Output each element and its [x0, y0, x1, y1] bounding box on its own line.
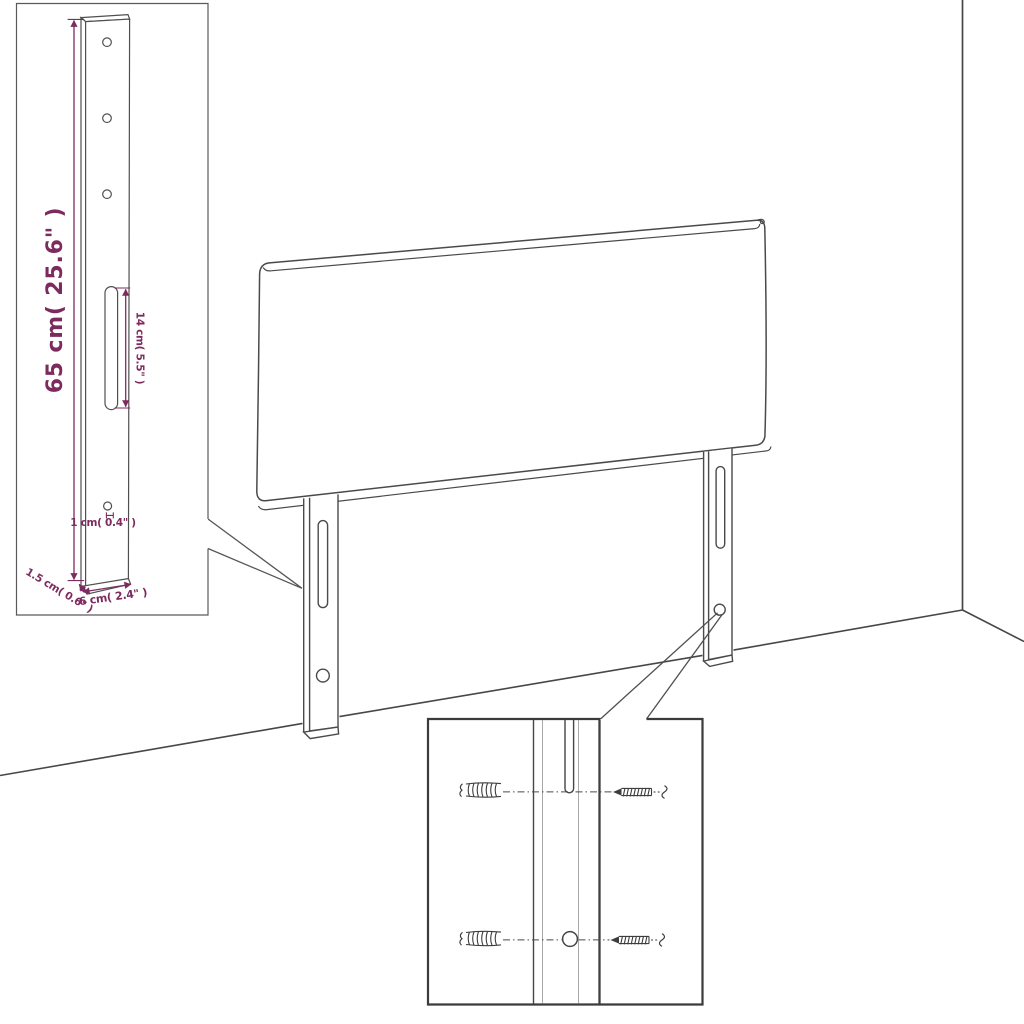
- panel-outline: [257, 220, 766, 500]
- headboard-left-leg: [304, 494, 339, 738]
- dimension-label-leg-height: 65 cm( 25.6" ): [45, 207, 67, 394]
- bracket-front-face: [86, 19, 130, 588]
- detail-leg-bracket: [81, 15, 131, 595]
- dimension-label-hole-diameter: 1 cm( 0.4" ): [70, 518, 136, 529]
- callout-lines-left: [208, 519, 302, 588]
- headboard-panel: [257, 219, 771, 509]
- hardware-inset: [428, 719, 703, 1005]
- diagram-linework: [0, 0, 1024, 1024]
- product-dimension-diagram: 65 cm( 25.6" ) 14 cm( 5.5" ) 1 cm( 0.4" …: [0, 0, 1024, 1024]
- bracket-side-face: [81, 18, 86, 589]
- dimension-label-slot-length: 14 cm( 5.5" ): [134, 312, 145, 385]
